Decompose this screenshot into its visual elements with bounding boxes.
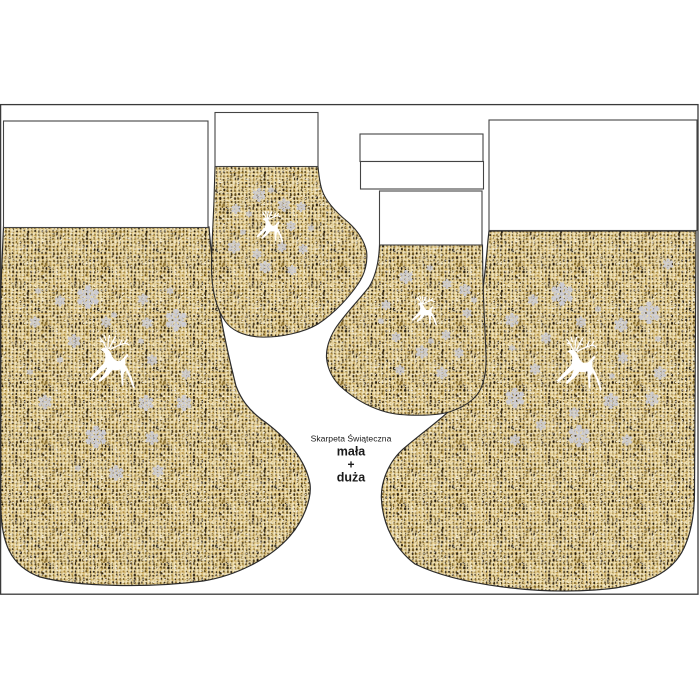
svg-text:duża: duża	[337, 471, 367, 485]
svg-text:+: +	[347, 458, 354, 472]
svg-text:Skarpeta Świąteczna: Skarpeta Świąteczna	[311, 433, 392, 444]
svg-text:mała: mała	[337, 445, 367, 459]
